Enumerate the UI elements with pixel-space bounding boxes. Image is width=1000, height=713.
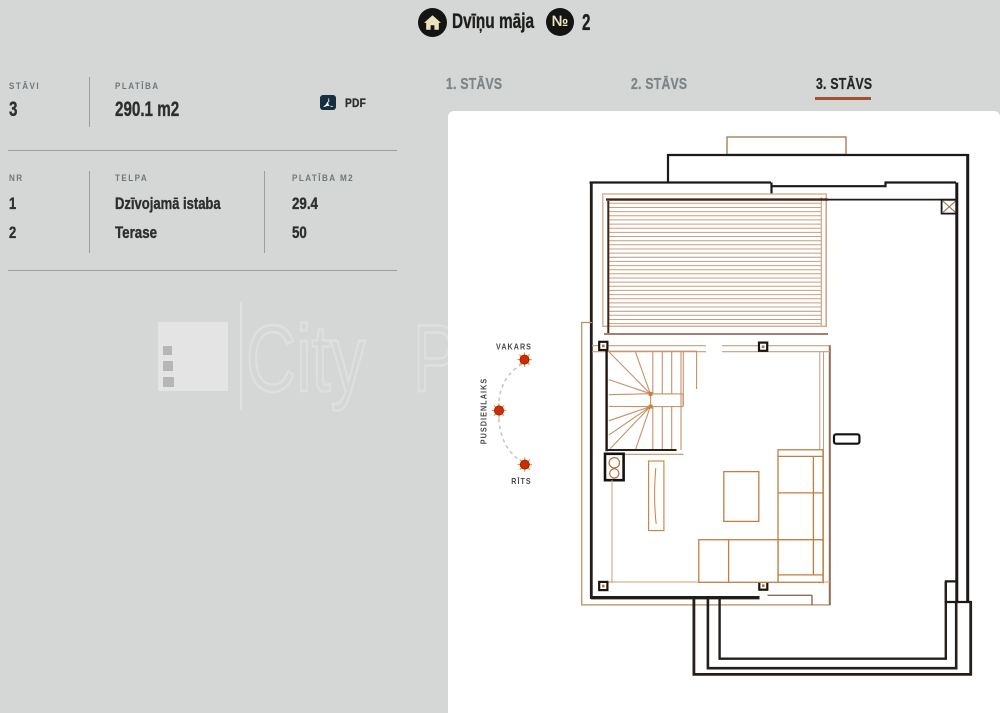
svg-text:PUSDIENLAIKS: PUSDIENLAIKS — [479, 378, 488, 445]
svg-text:RĪTS: RĪTS — [511, 477, 531, 487]
svg-text:VAKARS: VAKARS — [496, 342, 532, 352]
svg-text:City: City — [246, 305, 366, 411]
